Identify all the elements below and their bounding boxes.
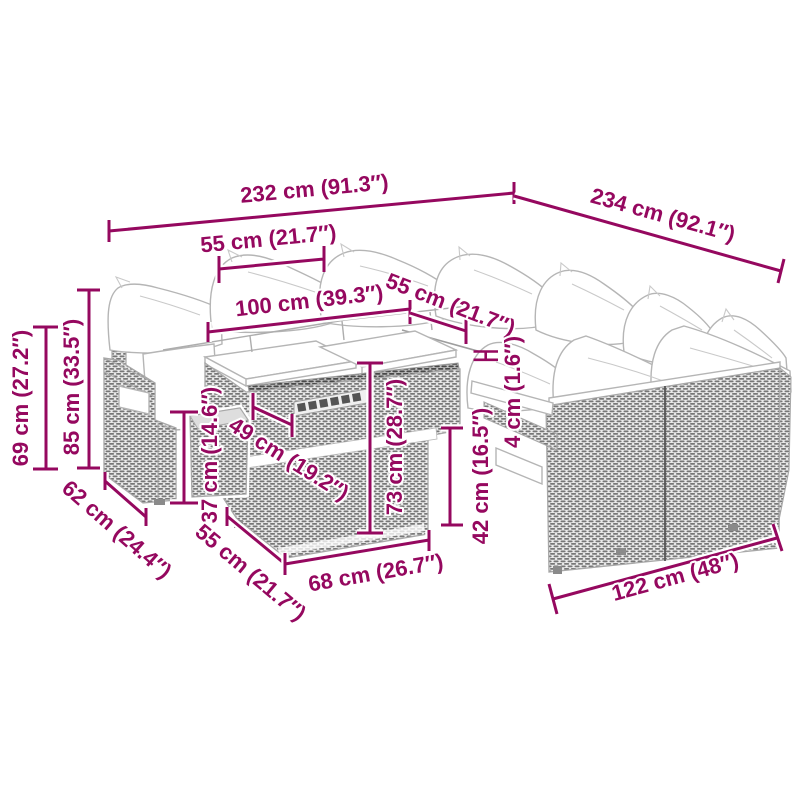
svg-text:73 cm (28.7″): 73 cm (28.7″) xyxy=(382,379,407,516)
svg-text:42 cm (16.5″): 42 cm (16.5″) xyxy=(468,408,493,545)
svg-text:55 cm (21.7″): 55 cm (21.7″) xyxy=(199,220,337,258)
svg-text:37 cm (14.6″): 37 cm (14.6″) xyxy=(197,387,222,524)
svg-text:85 cm (33.5″): 85 cm (33.5″) xyxy=(59,319,84,456)
svg-text:69 cm (27.2″): 69 cm (27.2″) xyxy=(8,330,33,467)
svg-text:4 cm (1.6″): 4 cm (1.6″) xyxy=(500,336,525,448)
svg-text:232 cm (91.3″): 232 cm (91.3″) xyxy=(239,169,389,208)
